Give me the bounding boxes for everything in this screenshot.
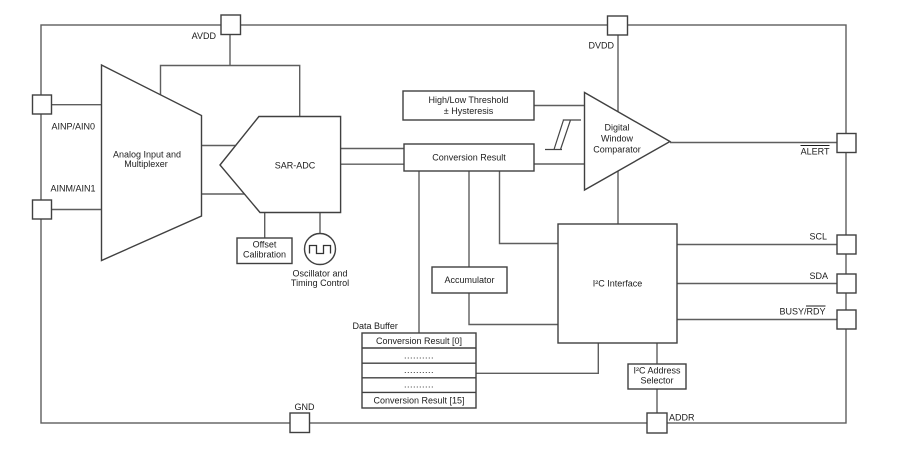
svg-text:AINM/AIN1: AINM/AIN1 (51, 184, 96, 194)
svg-text:GND: GND (295, 402, 316, 412)
svg-text:SDA: SDA (809, 271, 828, 281)
svg-text:ADDR: ADDR (669, 413, 695, 423)
svg-text:Timing Control: Timing Control (291, 278, 349, 288)
svg-text:Conversion Result: Conversion Result (432, 153, 506, 163)
svg-text:Calibration: Calibration (243, 250, 286, 260)
svg-text:Multiplexer: Multiplexer (124, 159, 168, 169)
svg-text:Oscillator and: Oscillator and (292, 269, 347, 279)
svg-text:Window: Window (601, 134, 634, 144)
svg-text:Digital: Digital (604, 123, 629, 133)
svg-text:I²C Address: I²C Address (633, 366, 681, 376)
svg-text:..........: .......... (404, 365, 434, 375)
svg-text:Selector: Selector (640, 376, 673, 386)
svg-text:AINP/AIN0: AINP/AIN0 (52, 122, 96, 132)
svg-text:Conversion Result [15]: Conversion Result [15] (373, 396, 464, 406)
svg-text:Analog Input and: Analog Input and (113, 150, 181, 160)
svg-text:± Hysteresis: ± Hysteresis (444, 106, 494, 116)
svg-text:SAR-ADC: SAR-ADC (275, 161, 316, 171)
svg-text:Data Buffer: Data Buffer (353, 321, 398, 331)
svg-text:I²C Interface: I²C Interface (593, 279, 643, 289)
svg-text:..........: .......... (404, 351, 434, 361)
svg-text:Comparator: Comparator (593, 145, 641, 155)
svg-text:DVDD: DVDD (588, 41, 614, 51)
svg-text:SCL: SCL (809, 232, 827, 242)
svg-text:AVDD: AVDD (192, 31, 217, 41)
svg-text:Conversion Result [0]: Conversion Result [0] (376, 336, 462, 346)
svg-text:BUSY/RDY: BUSY/RDY (779, 307, 825, 317)
svg-text:Offset: Offset (253, 240, 277, 250)
svg-text:Accumulator: Accumulator (444, 275, 494, 285)
svg-text:ALERT: ALERT (801, 147, 830, 157)
svg-text:High/Low Threshold: High/Low Threshold (429, 95, 509, 105)
svg-text:..........: .......... (404, 380, 434, 390)
